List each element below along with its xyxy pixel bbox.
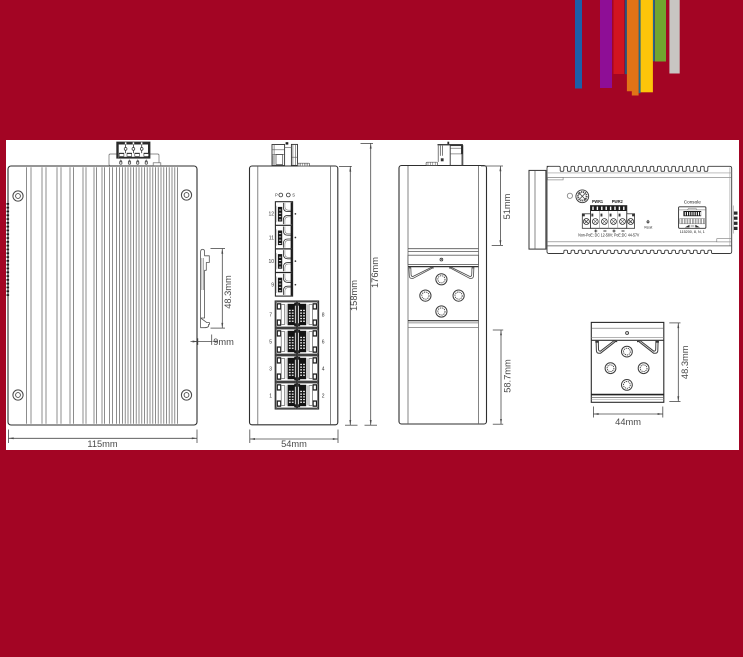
svg-text:115mm: 115mm (87, 439, 118, 449)
svg-text:Reset: Reset (644, 226, 653, 230)
svg-text:9mm: 9mm (213, 337, 234, 347)
svg-text:158mm: 158mm (349, 280, 359, 311)
svg-text:115200, 8, N, 1: 115200, 8, N, 1 (680, 229, 705, 234)
svg-text:176mm: 176mm (370, 257, 380, 288)
svg-text:12: 12 (268, 212, 274, 218)
svg-text:10: 10 (268, 259, 274, 265)
svg-text:Non-PoE: DC 12-58V; PoE:DC 44-: Non-PoE: DC 12-58V; PoE:DC 44-57V (578, 233, 639, 238)
svg-text:7: 7 (269, 313, 272, 319)
svg-text:1: 1 (269, 394, 272, 400)
svg-text:3: 3 (269, 367, 272, 373)
svg-text:51mm: 51mm (502, 193, 512, 219)
svg-text:11: 11 (269, 235, 274, 241)
svg-text:2: 2 (322, 394, 325, 400)
svg-text:P: P (275, 193, 278, 198)
svg-text:48.3mm: 48.3mm (680, 345, 690, 379)
svg-text:44mm: 44mm (615, 417, 641, 427)
svg-text:5: 5 (269, 340, 272, 346)
svg-text:54mm: 54mm (281, 439, 307, 449)
svg-text:S: S (292, 193, 295, 198)
svg-text:PWR1: PWR1 (592, 199, 603, 204)
svg-text:Console: Console (684, 199, 701, 204)
svg-text:6: 6 (322, 340, 325, 346)
svg-text:58.7mm: 58.7mm (503, 359, 513, 393)
svg-text:9: 9 (271, 283, 274, 289)
svg-text:48.3mm: 48.3mm (223, 275, 233, 309)
svg-text:4: 4 (322, 367, 325, 373)
svg-text:8: 8 (322, 313, 325, 319)
svg-text:PWR2: PWR2 (612, 199, 623, 204)
